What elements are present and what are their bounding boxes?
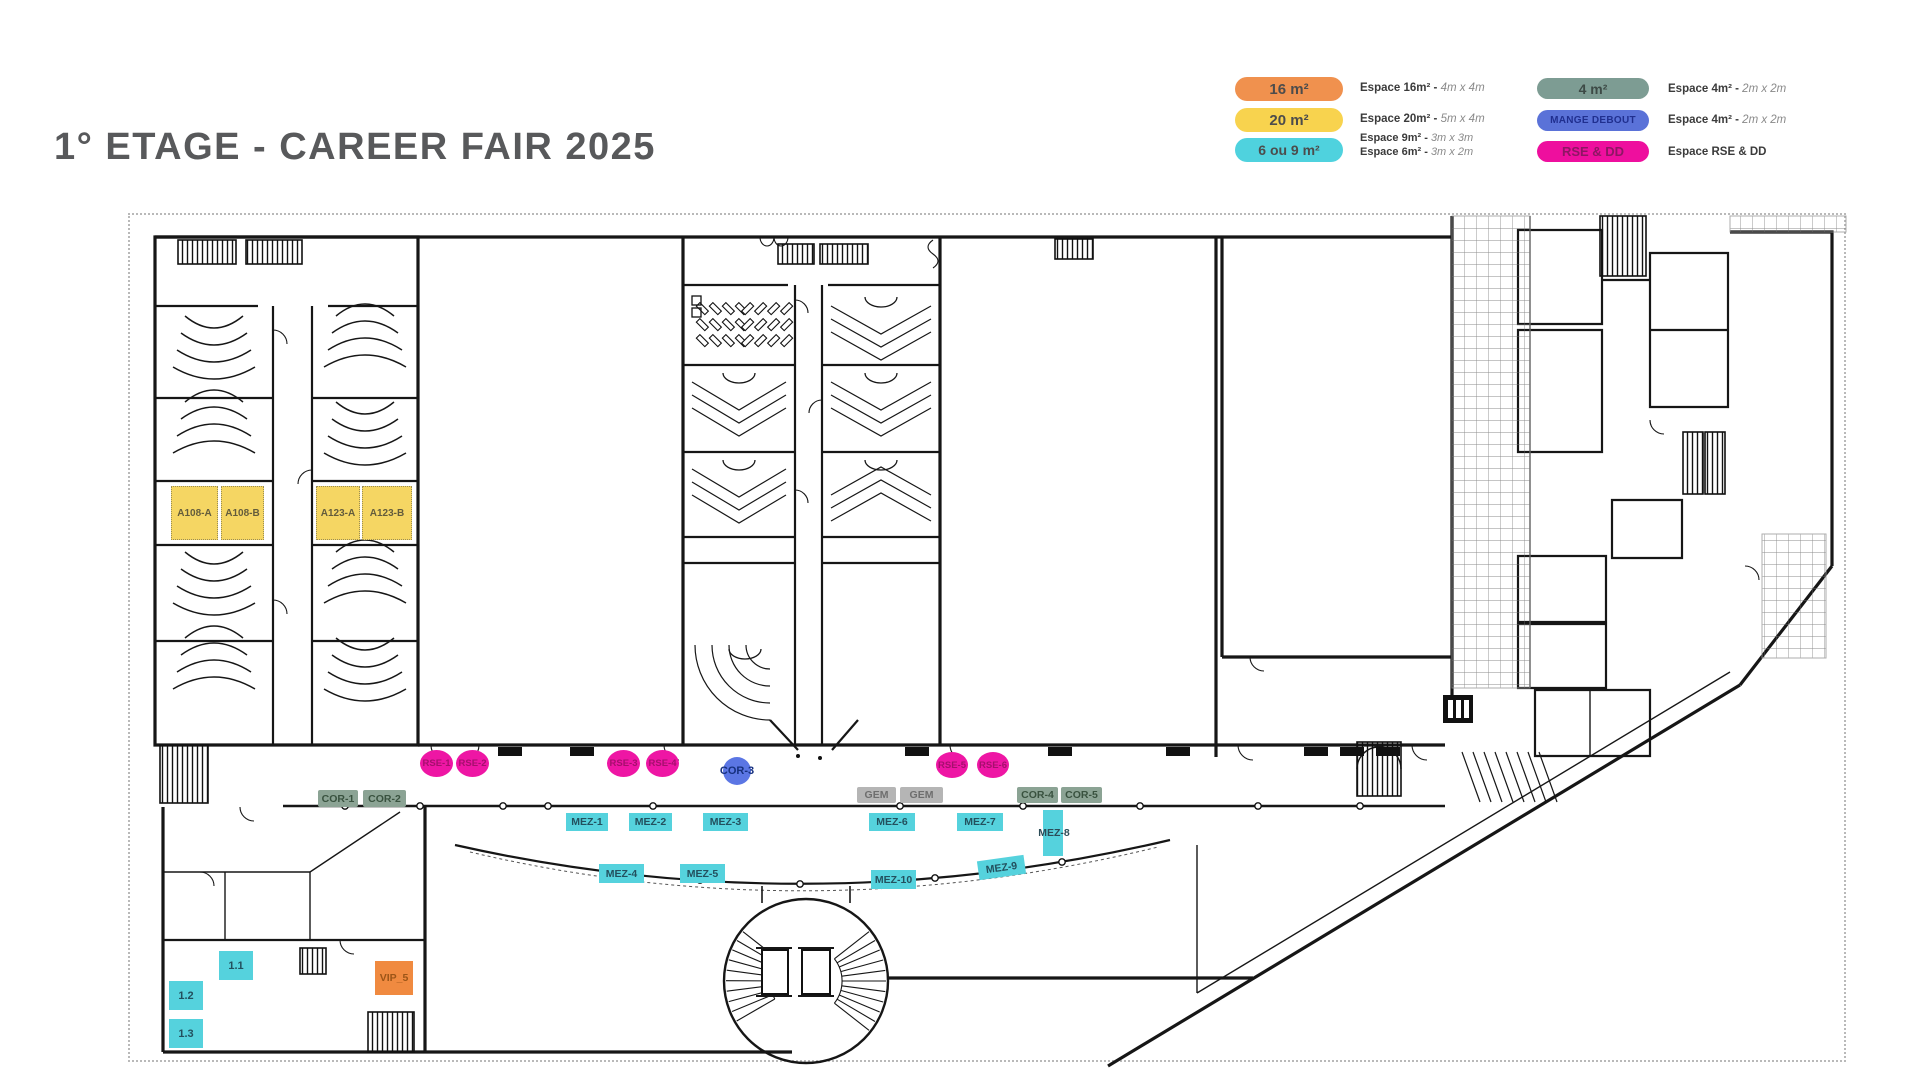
booth-mez-3[interactable]: MEZ-3 bbox=[703, 813, 748, 831]
booth-cor-1[interactable]: COR-1 bbox=[318, 790, 358, 807]
booth-cor-3-label: COR-3 bbox=[720, 765, 754, 777]
booth-rse-5[interactable]: RSE-5 bbox=[936, 752, 968, 778]
booth-cor-4[interactable]: COR-4 bbox=[1017, 787, 1058, 803]
booth-gem-1[interactable]: GEM bbox=[857, 787, 896, 803]
booth-cor-2[interactable]: COR-2 bbox=[363, 790, 406, 807]
booth-mez-6[interactable]: MEZ-6 bbox=[869, 813, 915, 831]
booth-mez-8-label: MEZ-8 bbox=[1030, 826, 1078, 840]
booth-mez-10[interactable]: MEZ-10 bbox=[871, 870, 916, 889]
booth-mez-4[interactable]: MEZ-4 bbox=[599, 864, 644, 883]
booth-1-3[interactable]: 1.3 bbox=[169, 1019, 203, 1048]
booth-a108-b[interactable]: A108-B bbox=[221, 486, 264, 540]
booth-a108-a[interactable]: A108-A bbox=[171, 486, 218, 540]
booth-rse-3[interactable]: RSE-3 bbox=[607, 750, 640, 777]
booth-a123-a[interactable]: A123-A bbox=[316, 486, 360, 540]
booth-mez-1[interactable]: MEZ-1 bbox=[566, 813, 608, 831]
booth-1-2[interactable]: 1.2 bbox=[169, 981, 203, 1010]
career-fair-floorplan-page: 1° ETAGE - CAREER FAIR 2025 16 m² 20 m² … bbox=[0, 0, 1920, 1080]
booth-cor-5[interactable]: COR-5 bbox=[1061, 787, 1102, 803]
booth-mez-2[interactable]: MEZ-2 bbox=[629, 813, 672, 831]
booth-rse-2[interactable]: RSE-2 bbox=[456, 750, 489, 777]
booth-rse-6[interactable]: RSE-6 bbox=[977, 752, 1009, 778]
floorplan-svg bbox=[0, 0, 1920, 1080]
booth-rse-4[interactable]: RSE-4 bbox=[646, 750, 679, 777]
booth-gem-2[interactable]: GEM bbox=[900, 787, 943, 803]
booth-a123-b[interactable]: A123-B bbox=[362, 486, 412, 540]
booth-cor-3[interactable]: COR-3 bbox=[714, 757, 760, 785]
booth-mez-7[interactable]: MEZ-7 bbox=[957, 813, 1003, 831]
booth-mez-5[interactable]: MEZ-5 bbox=[680, 864, 725, 883]
booth-1-1[interactable]: 1.1 bbox=[219, 951, 253, 980]
booth-vip-5[interactable]: VIP_5 bbox=[375, 961, 413, 995]
booth-rse-1[interactable]: RSE-1 bbox=[420, 750, 453, 777]
